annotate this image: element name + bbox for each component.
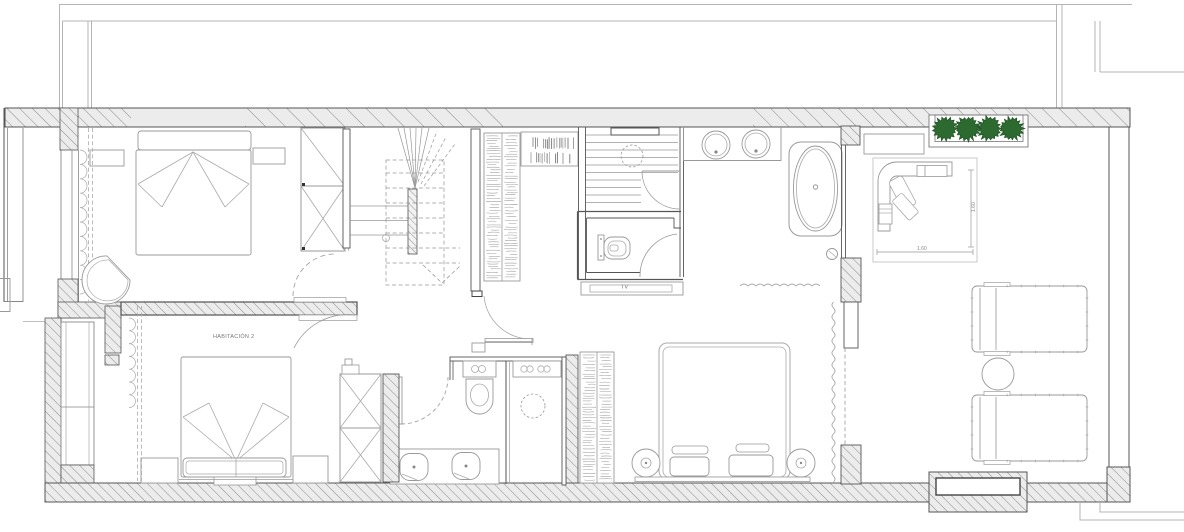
svg-text:1.60: 1.60 (917, 246, 927, 252)
svg-text:HABITACIÓN 2: HABITACIÓN 2 (213, 333, 254, 340)
svg-text:1.60: 1.60 (971, 202, 977, 212)
